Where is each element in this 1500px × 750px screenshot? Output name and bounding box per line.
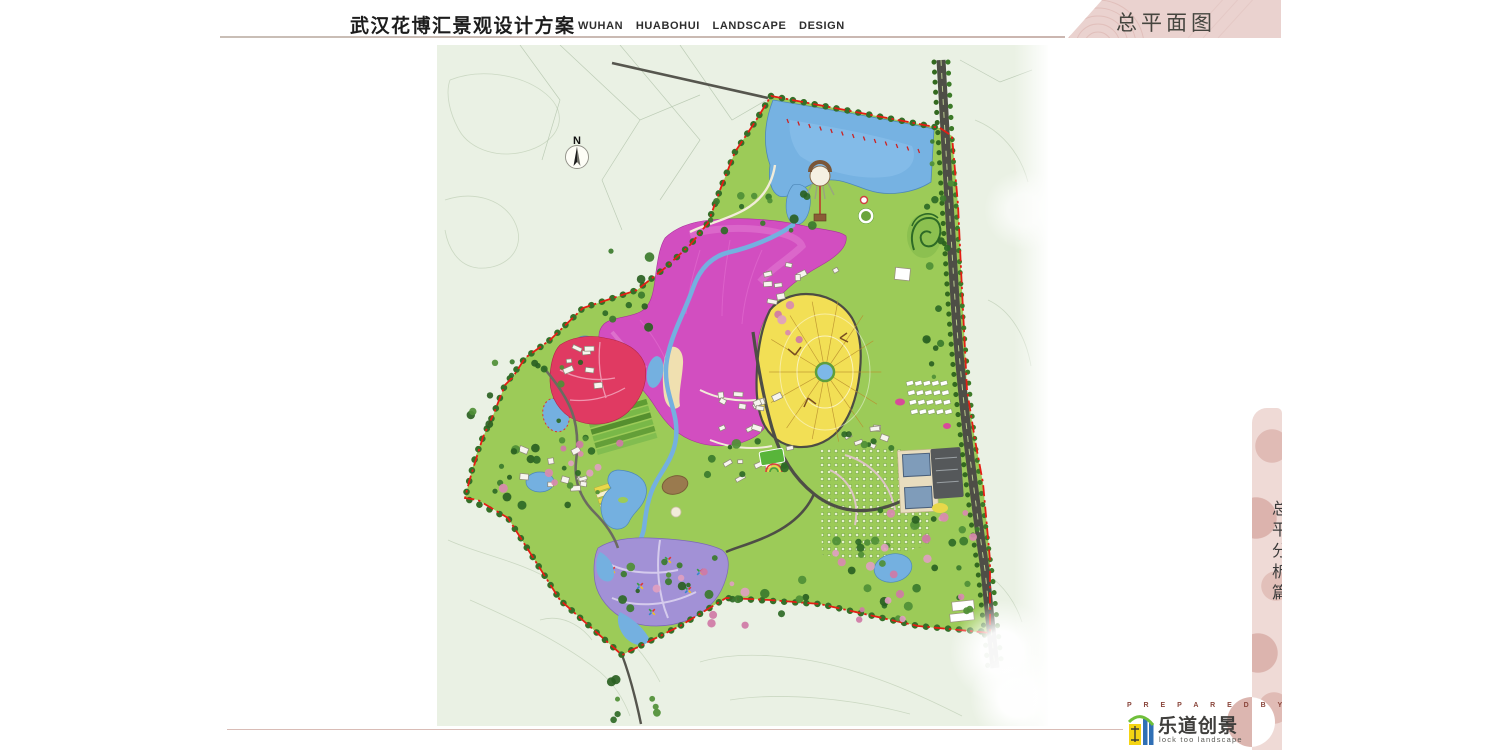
footer-divider: [227, 729, 1123, 730]
north-label: N: [573, 135, 581, 147]
section-banner-label: 总平面图: [1116, 7, 1216, 37]
slide-page: 武汉花博汇景观设计方案 WUHAN HUABOHUI LANDSCAPE DES…: [0, 0, 1500, 750]
company-tagline: lock too landscape: [1159, 735, 1243, 744]
master-plan-map: N: [437, 45, 1048, 726]
header-divider: [220, 36, 1065, 38]
company-name: 乐道创景: [1158, 711, 1238, 738]
exhibition-building: [894, 267, 910, 281]
section-banner: 总平面图: [1068, 0, 1281, 38]
company-logo-icon: [1128, 714, 1155, 747]
maze-garden: [907, 214, 941, 258]
side-tab-label: 总平分析篇: [1259, 500, 1282, 605]
prepared-by-label: P R E P A R E D B Y: [1127, 702, 1287, 709]
page-title: 武汉花博汇景观设计方案: [350, 11, 576, 38]
side-tab: 总平分析篇: [1252, 408, 1282, 750]
page-subtitle: WUHAN HUABOHUI LANDSCAPE DESIGN: [578, 20, 845, 32]
